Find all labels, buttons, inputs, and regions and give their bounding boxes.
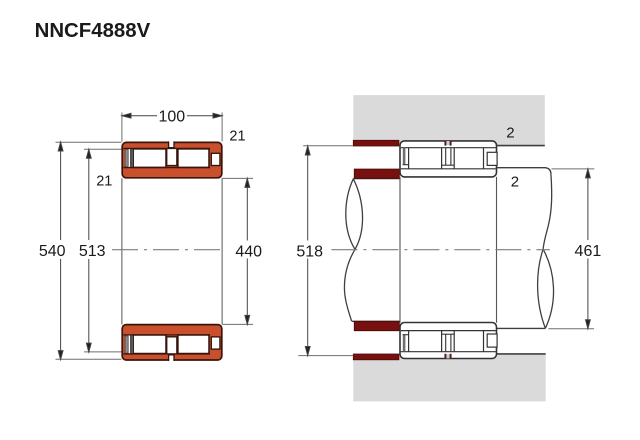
- svg-text:461: 461: [575, 243, 602, 260]
- svg-text:540: 540: [39, 243, 66, 260]
- svg-text:2: 2: [511, 173, 519, 190]
- svg-text:513: 513: [79, 243, 106, 260]
- svg-text:100: 100: [158, 109, 185, 126]
- svg-text:21: 21: [96, 173, 112, 189]
- svg-text:440: 440: [235, 243, 262, 260]
- svg-text:2: 2: [506, 124, 514, 141]
- svg-text:NNCF4888V: NNCF4888V: [35, 20, 151, 42]
- svg-text:21: 21: [229, 128, 245, 144]
- svg-text:518: 518: [296, 244, 323, 261]
